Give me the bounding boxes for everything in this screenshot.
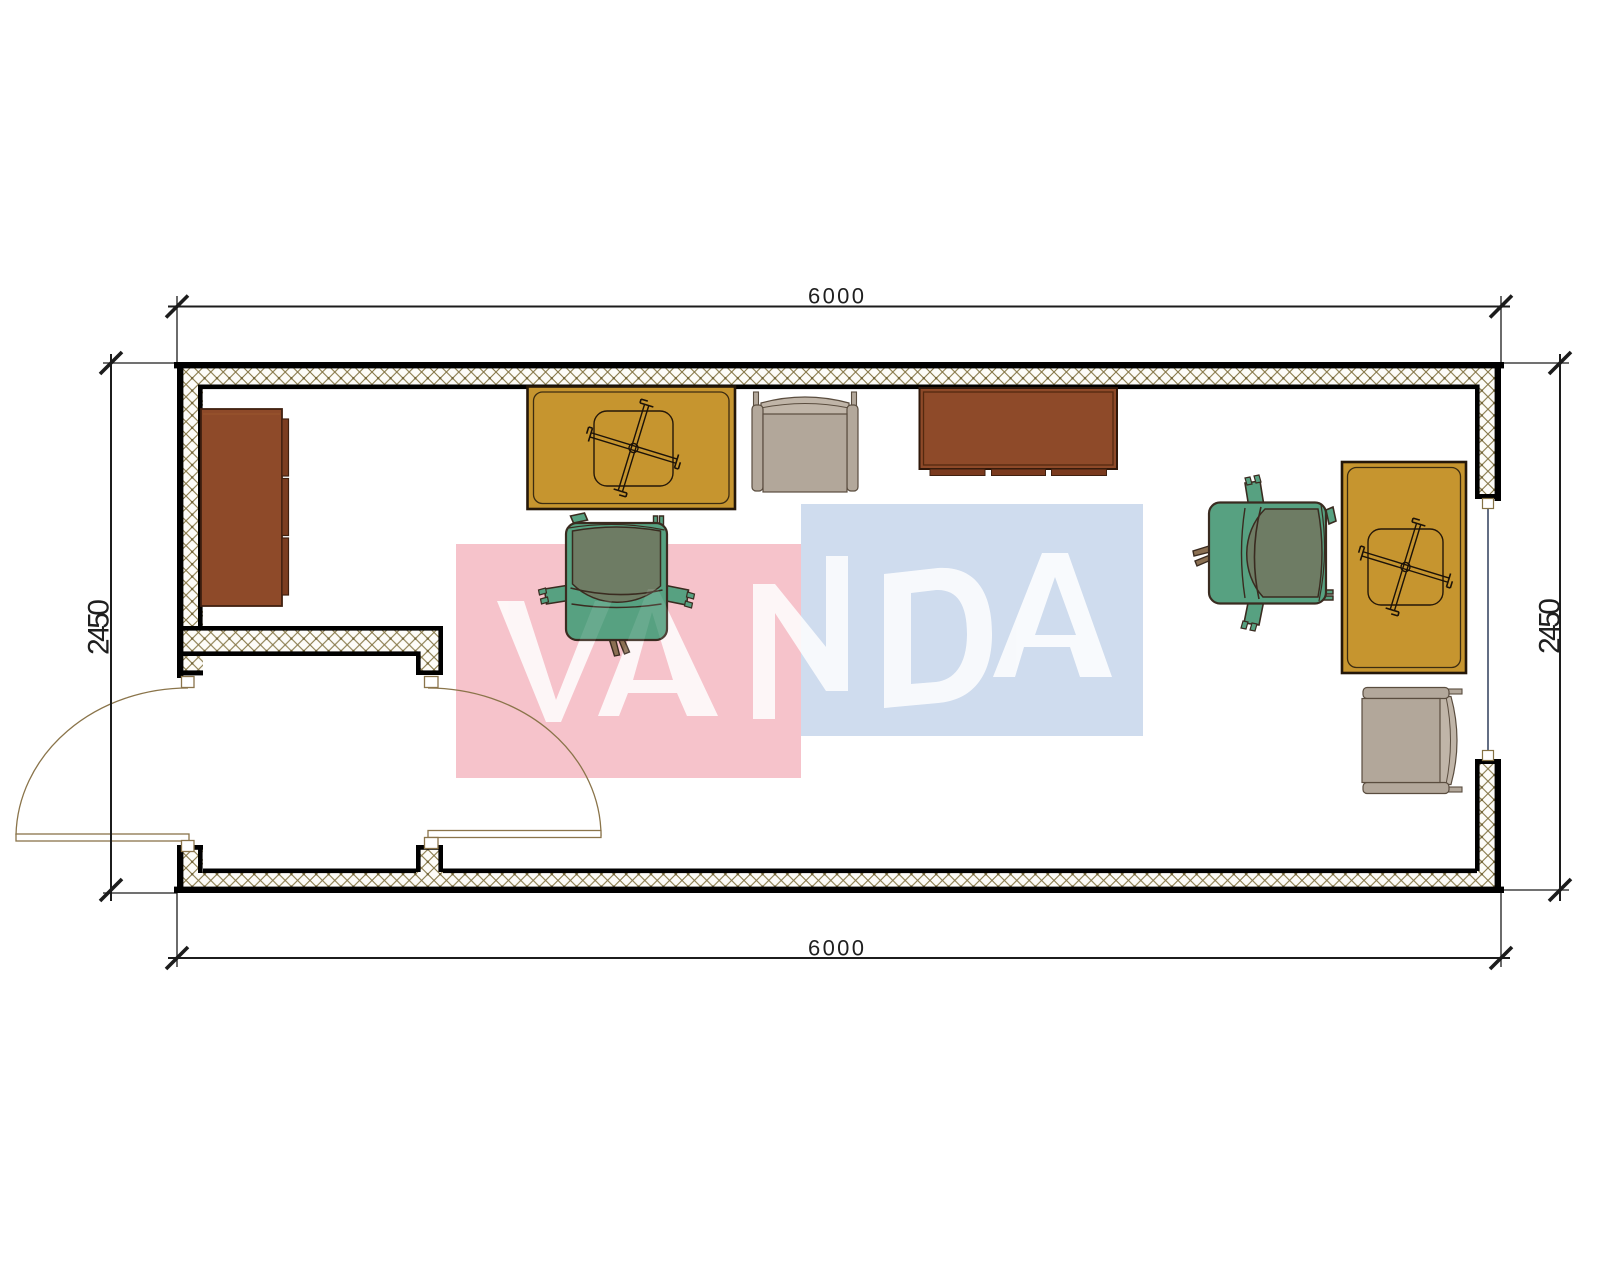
svg-text:2450: 2450: [1534, 598, 1567, 654]
svg-text:2450: 2450: [83, 599, 116, 655]
